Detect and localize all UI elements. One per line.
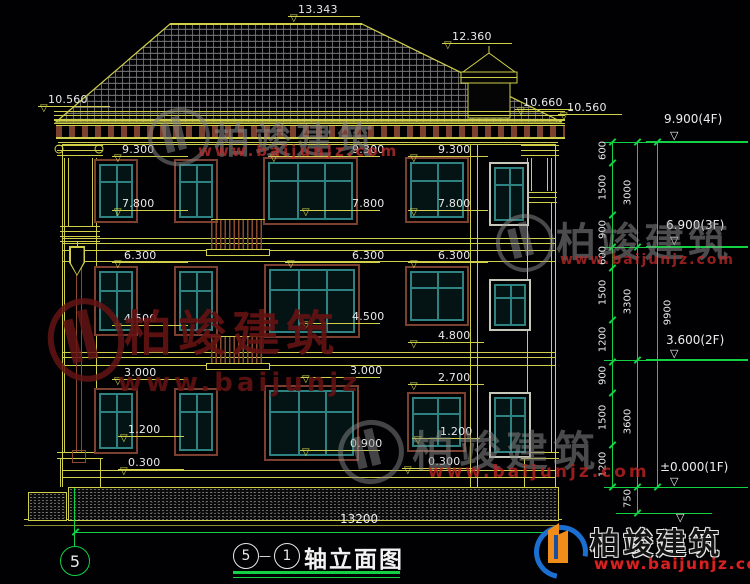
level-marker-triangle: ▽ <box>270 154 278 164</box>
level-marker-triangle: ▽ <box>40 104 48 114</box>
linework <box>60 458 61 487</box>
overall-dim-line <box>75 532 556 533</box>
title-underline-thick <box>233 571 400 574</box>
floor-level-triangle: ▽ <box>670 130 678 141</box>
level-marker-line <box>408 156 488 157</box>
dim-label: 1200 <box>598 437 609 493</box>
linework <box>62 357 556 358</box>
floor-level-triangle: ▽ <box>670 476 678 487</box>
dim-level-line <box>604 142 748 143</box>
level-marker-text: 9.300 <box>122 143 155 156</box>
level-marker-triangle: ▽ <box>410 382 418 392</box>
overall-dim-label: 13200 <box>340 512 378 526</box>
linework <box>521 145 559 146</box>
floor-level-label: 6.900(3F) <box>666 218 724 232</box>
floor-level-label: 9.900(4F) <box>664 112 722 126</box>
dim-label: 750 <box>623 471 634 527</box>
level-marker-triangle: ▽ <box>114 208 122 218</box>
linework <box>57 150 103 151</box>
level-marker-text: 6.300 <box>124 249 157 262</box>
level-marker-triangle: ▽ <box>114 260 122 270</box>
level-marker-line <box>285 262 380 263</box>
balcony-railing <box>211 336 265 364</box>
floor-level-triangle: ▽ <box>670 235 678 246</box>
linework <box>100 458 101 487</box>
linework <box>531 158 532 191</box>
level-marker-line <box>408 262 488 263</box>
level-marker-line <box>112 262 188 263</box>
level-marker-line <box>288 16 360 17</box>
linework <box>555 458 556 487</box>
title-underline-thin <box>233 577 400 578</box>
linework <box>92 158 93 226</box>
level-marker-text: 12.360 <box>452 30 492 43</box>
level-marker-line <box>300 450 380 451</box>
level-marker-text: 6.300 <box>438 249 471 262</box>
floor-level-line <box>646 487 748 488</box>
level-marker-text: 4.500 <box>352 310 385 323</box>
level-marker-triangle: ▽ <box>302 208 310 218</box>
level-marker-line <box>112 156 188 157</box>
level-marker-triangle: ▽ <box>410 340 418 350</box>
level-marker-text: 3.000 <box>124 366 157 379</box>
level-marker-triangle: ▽ <box>287 260 295 270</box>
title-separator: — <box>259 549 271 563</box>
level-marker-line <box>300 210 380 211</box>
window <box>489 279 531 331</box>
window <box>94 388 138 454</box>
window <box>489 392 531 458</box>
level-marker-triangle: ▽ <box>404 466 412 476</box>
level-marker-triangle: ▽ <box>444 41 452 51</box>
linework <box>477 144 478 487</box>
linework <box>54 115 565 116</box>
axis-bubble-label: 5 <box>70 552 80 571</box>
downspout <box>76 252 77 452</box>
axis-leader <box>74 488 75 546</box>
window <box>174 159 218 223</box>
level-marker-text: 2.700 <box>438 371 471 384</box>
level-marker-text: 1.200 <box>440 425 473 438</box>
window-glazing <box>494 167 524 221</box>
level-marker-text: 6.300 <box>352 249 385 262</box>
linework <box>547 158 548 191</box>
below-ground-triangle: ▽ <box>676 512 684 523</box>
level-marker-text: 9.300 <box>352 143 385 156</box>
drawing-title: 轴立面图 <box>304 540 404 574</box>
level-marker-triangle: ▽ <box>114 377 122 387</box>
level-marker-triangle: ▽ <box>120 434 128 444</box>
linework <box>521 150 559 151</box>
linework <box>62 144 63 487</box>
floor-level-line <box>646 141 748 142</box>
level-marker-line <box>112 325 188 326</box>
linework <box>56 138 565 139</box>
floor-level-label: 3.600(2F) <box>666 333 724 347</box>
level-marker-line <box>112 379 188 380</box>
plinth-step-left <box>28 492 67 521</box>
dim-chain-line <box>657 142 658 487</box>
linework <box>62 477 556 478</box>
linework <box>54 111 565 112</box>
level-marker-triangle: ▽ <box>302 321 310 331</box>
linework <box>54 123 565 124</box>
level-marker-text: 13.343 <box>298 3 338 16</box>
level-marker-line <box>412 438 480 439</box>
level-marker-text: 7.800 <box>122 197 155 210</box>
title-axis-start: 5 <box>233 543 259 569</box>
level-marker-line <box>408 384 484 385</box>
dim-label: 3000 <box>623 165 634 221</box>
level-marker-triangle: ▽ <box>114 323 122 333</box>
balcony-railing <box>211 219 265 250</box>
level-marker-triangle: ▽ <box>517 107 525 117</box>
level-marker-line <box>442 43 512 44</box>
balcony-slab <box>206 363 270 370</box>
window <box>405 266 469 326</box>
linework <box>521 155 559 156</box>
linework <box>551 158 552 191</box>
window-glazing <box>179 271 213 331</box>
level-marker-line <box>408 342 484 343</box>
dim-level-line <box>604 247 748 248</box>
level-marker-text: 10.560 <box>567 101 607 114</box>
floor-level-triangle: ▽ <box>670 348 678 359</box>
linework <box>57 155 103 156</box>
window <box>174 388 218 456</box>
linework <box>64 158 65 453</box>
axis-bubble: 5 <box>60 546 90 576</box>
linework <box>60 231 100 232</box>
level-marker-line <box>300 377 380 378</box>
level-marker-text: 0.900 <box>350 437 383 450</box>
dim-level-line <box>604 360 748 361</box>
linework <box>555 144 556 487</box>
level-marker-text: 0.300 <box>428 455 461 468</box>
linework <box>524 458 525 487</box>
linework <box>62 243 556 244</box>
level-marker-line <box>300 323 380 324</box>
dim-label: 3300 <box>623 274 634 330</box>
level-marker-line <box>268 156 380 157</box>
linework <box>60 226 100 227</box>
window-glazing <box>494 284 526 326</box>
level-marker-text: 4.500 <box>124 312 157 325</box>
level-marker-line <box>408 210 488 211</box>
level-marker-triangle: ▽ <box>290 14 298 24</box>
dim-chain-line <box>637 142 638 513</box>
floor-level-line <box>646 246 748 247</box>
level-marker-triangle: ▽ <box>410 208 418 218</box>
level-marker-triangle: ▽ <box>414 436 422 446</box>
level-marker-triangle: ▽ <box>410 260 418 270</box>
linework <box>68 158 69 226</box>
level-marker-line <box>112 210 188 211</box>
linework <box>57 145 103 146</box>
level-marker-triangle: ▽ <box>120 467 128 477</box>
window-glazing <box>494 397 526 453</box>
level-marker-text: 1.200 <box>128 423 161 436</box>
level-marker-text: 10.560 <box>48 93 88 106</box>
linework <box>551 203 552 453</box>
linework <box>62 352 556 353</box>
window-glazing <box>179 393 213 451</box>
level-marker-text: 7.800 <box>438 197 471 210</box>
linework <box>62 470 556 471</box>
ground-line-2 <box>24 525 562 526</box>
level-marker-line <box>402 468 472 469</box>
linework <box>521 458 559 459</box>
level-marker-triangle: ▽ <box>302 375 310 385</box>
floor-level-label: ±0.000(1F) <box>660 460 728 474</box>
linework <box>60 236 100 237</box>
title-axis-end: 1 <box>274 543 300 569</box>
downspout-shoe <box>72 450 86 463</box>
window <box>263 157 358 225</box>
plinth-base <box>68 487 559 521</box>
level-marker-text: 9.300 <box>438 143 471 156</box>
window-glazing <box>269 390 354 456</box>
level-marker-text: 4.800 <box>438 329 471 342</box>
linework <box>54 119 565 121</box>
dim-label: 3600 <box>623 394 634 450</box>
window <box>264 264 360 338</box>
level-marker-text: 10.660 <box>523 96 563 109</box>
level-marker-triangle: ▽ <box>114 154 122 164</box>
linework <box>60 241 100 242</box>
window-glazing <box>410 271 464 321</box>
downspout <box>81 252 82 452</box>
window <box>489 162 529 226</box>
level-marker-text: 0.300 <box>128 456 161 469</box>
level-marker-text: 3.000 <box>350 364 383 377</box>
level-marker-triangle: ▽ <box>410 154 418 164</box>
linework <box>62 238 556 239</box>
level-marker-line <box>38 106 110 107</box>
floor-level-line <box>646 359 748 360</box>
balcony-slab <box>206 249 270 256</box>
level-marker-text: 7.800 <box>352 197 385 210</box>
level-marker-triangle: ▽ <box>560 112 568 122</box>
dim-chain-line <box>612 142 613 487</box>
cad-elevation-drawing: 13.343▽12.360▽10.560▽10.660▽10.560▽9.300… <box>0 0 750 584</box>
window-glazing <box>268 162 353 220</box>
level-marker-triangle: ▽ <box>302 448 310 458</box>
